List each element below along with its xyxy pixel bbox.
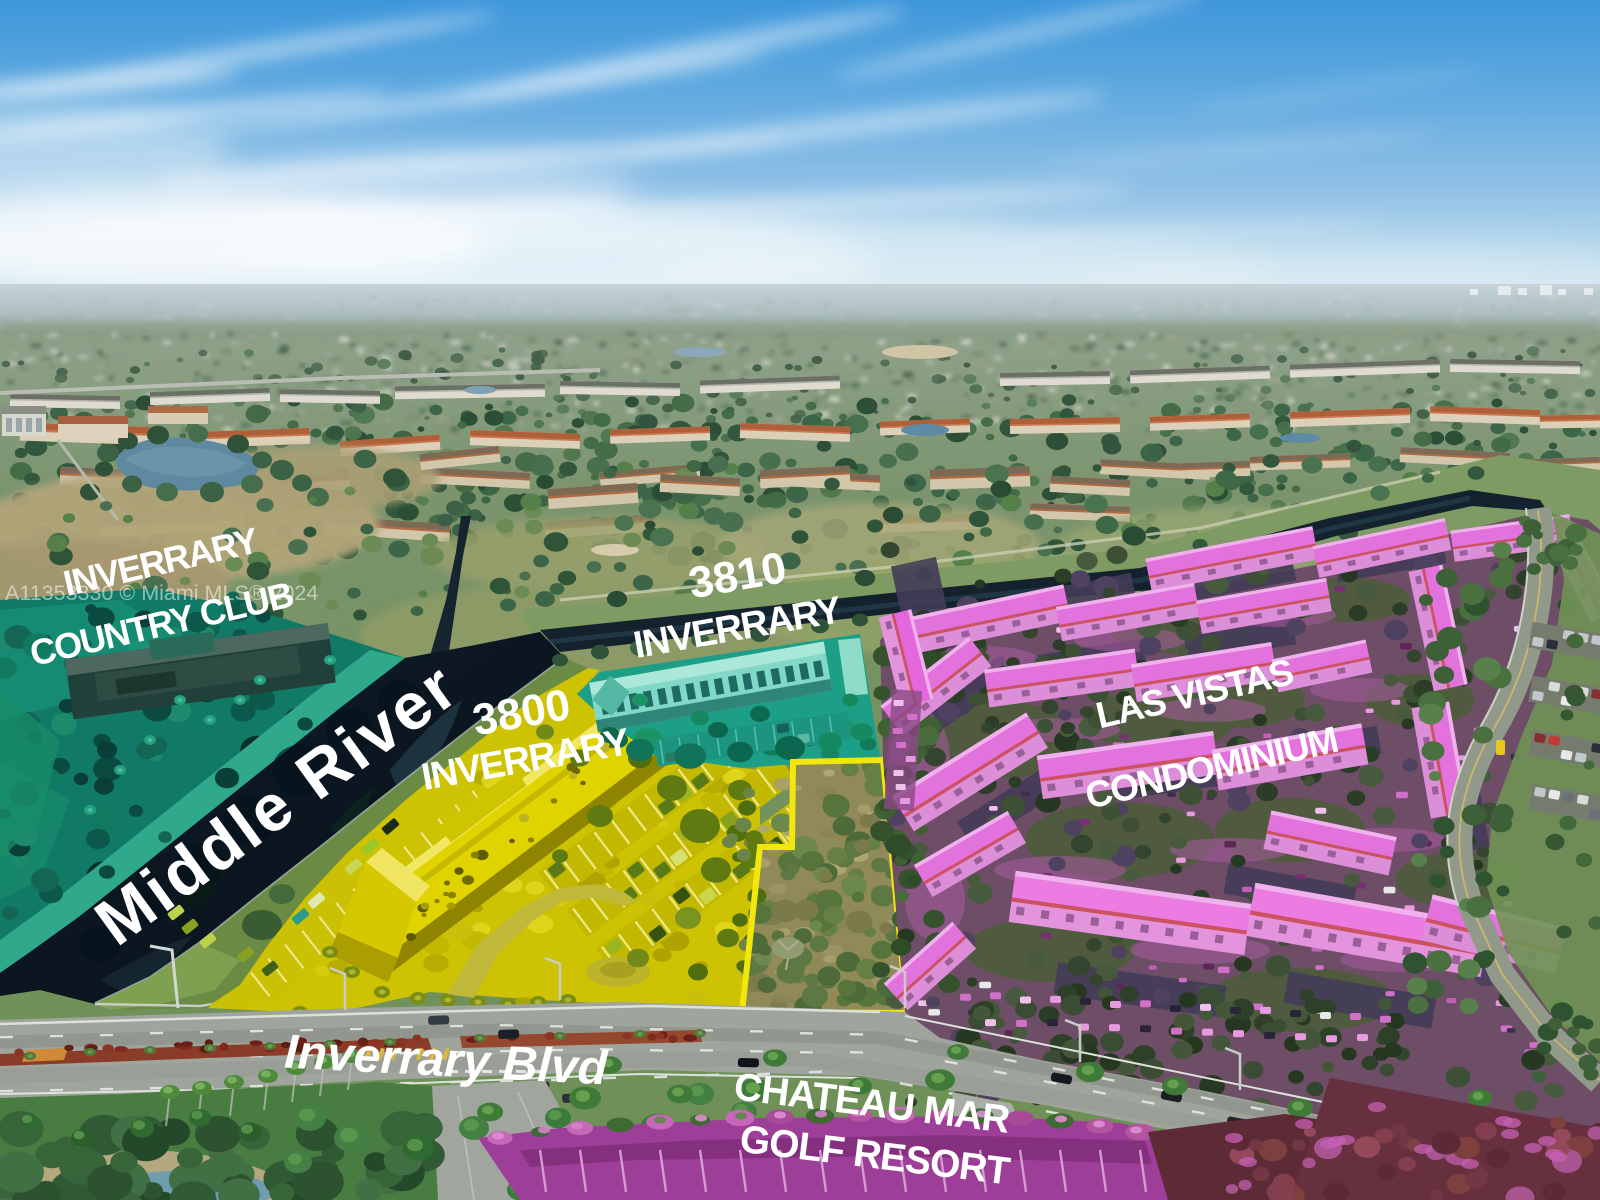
- svg-text:A11353330 © Miami MLS® 2024: A11353330 © Miami MLS® 2024: [5, 581, 318, 605]
